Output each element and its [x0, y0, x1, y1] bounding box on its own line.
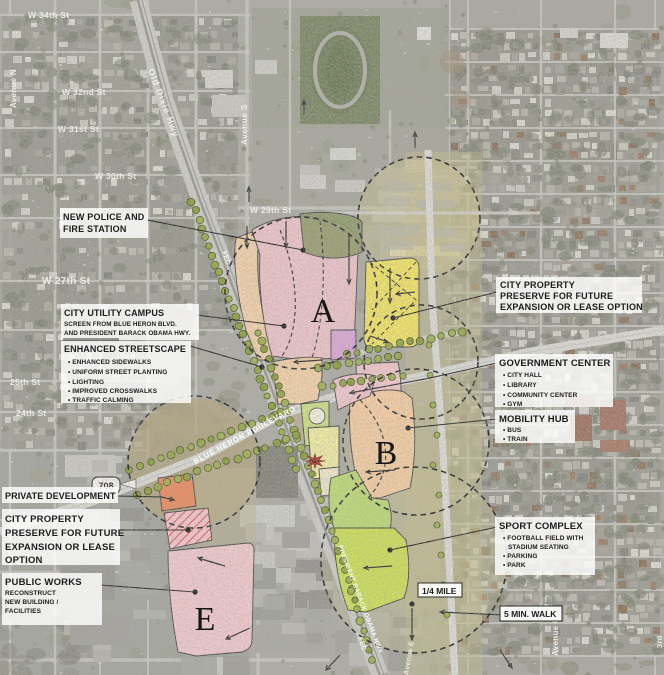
svg-text:GOVERNMENT CENTER: GOVERNMENT CENTER: [499, 358, 611, 369]
svg-text:FACILITIES: FACILITIES: [5, 608, 42, 615]
svg-text:Avenue N: Avenue N: [9, 69, 18, 108]
svg-text:1/4 MILE: 1/4 MILE: [422, 586, 457, 596]
svg-text:• IMPROVED CROSSWALKS: • IMPROVED CROSSWALKS: [68, 388, 158, 395]
svg-text:A: A: [311, 293, 336, 330]
svg-text:• PARK: • PARK: [503, 562, 526, 569]
svg-text:Avenue C: Avenue C: [551, 617, 560, 656]
svg-text:PRESERVE FOR FUTURE: PRESERVE FOR FUTURE: [500, 291, 613, 301]
svg-text:• COMMUNITY CENTER: • COMMUNITY CENTER: [503, 392, 578, 399]
svg-text:W 34th St: W 34th St: [28, 10, 69, 20]
svg-text:EXPANSION OR LEASE OPTION: EXPANSION OR LEASE OPTION: [500, 302, 643, 312]
svg-text:CITY UTILITY CAMPUS: CITY UTILITY CAMPUS: [64, 308, 164, 318]
svg-text:• GYM: • GYM: [503, 401, 522, 408]
svg-text:NEW BUILDING /: NEW BUILDING /: [5, 599, 58, 606]
svg-text:• TRAFFIC CALMING: • TRAFFIC CALMING: [68, 397, 134, 404]
svg-text:NEW POLICE AND: NEW POLICE AND: [63, 212, 145, 222]
svg-text:W 31st St: W 31st St: [58, 124, 99, 134]
svg-text:• PARKING: • PARKING: [503, 553, 537, 560]
svg-text:• ENHANCED SIDEWALKS: • ENHANCED SIDEWALKS: [68, 359, 152, 366]
svg-text:RECONSTRUCT: RECONSTRUCT: [5, 590, 56, 597]
svg-text:SCREEN FROM BLUE HERON BLVD.: SCREEN FROM BLUE HERON BLVD.: [64, 321, 177, 328]
svg-text:STADIUM SEATING: STADIUM SEATING: [508, 544, 569, 551]
svg-text:CITY PROPERTY: CITY PROPERTY: [5, 514, 84, 525]
svg-text:• BUS: • BUS: [503, 427, 522, 434]
svg-text:E: E: [195, 601, 216, 638]
svg-text:W 32nd St: W 32nd St: [62, 87, 106, 97]
svg-text:SPORT COMPLEX: SPORT COMPLEX: [499, 521, 583, 532]
svg-text:W 30th St: W 30th St: [95, 171, 136, 181]
svg-text:Avenue S: Avenue S: [239, 104, 249, 145]
svg-text:FIRE STATION: FIRE STATION: [63, 224, 127, 234]
svg-text:W 29th St: W 29th St: [250, 205, 291, 215]
svg-text:5 MIN. WALK: 5 MIN. WALK: [504, 609, 557, 619]
svg-text:B: B: [375, 435, 398, 472]
svg-text:W 27th St: W 27th St: [42, 276, 91, 287]
svg-text:• UNIFORM STREET PLANTING: • UNIFORM STREET PLANTING: [68, 369, 167, 376]
svg-text:• LIBRARY: • LIBRARY: [503, 382, 537, 389]
svg-text:• CITY HALL: • CITY HALL: [503, 372, 542, 379]
svg-text:MOBILITY HUB: MOBILITY HUB: [499, 414, 569, 425]
svg-text:PRESERVE FOR FUTURE: PRESERVE FOR FUTURE: [5, 528, 124, 539]
svg-text:• FOOTBALL FIELD WITH: • FOOTBALL FIELD WITH: [503, 535, 584, 542]
svg-text:PUBLIC WORKS: PUBLIC WORKS: [5, 577, 82, 588]
svg-text:PRIVATE DEVELOPMENT: PRIVATE DEVELOPMENT: [5, 491, 116, 501]
svg-text:EXPANSION OR LEASE: EXPANSION OR LEASE: [5, 542, 115, 553]
svg-text:AND PRESIDENT BARACK OBAMA HWY: AND PRESIDENT BARACK OBAMA HWY.: [64, 330, 191, 337]
svg-text:3rd: 3rd: [655, 635, 664, 648]
svg-text:• TRAIN: • TRAIN: [503, 436, 528, 443]
svg-text:24th St: 24th St: [16, 408, 46, 418]
svg-text:ENHANCED STREETSCAPE: ENHANCED STREETSCAPE: [64, 344, 186, 354]
svg-text:25th St: 25th St: [10, 377, 40, 387]
svg-text:• LIGHTING: • LIGHTING: [68, 379, 104, 386]
svg-text:OPTION: OPTION: [5, 555, 43, 566]
svg-text:CITY PROPERTY: CITY PROPERTY: [500, 280, 575, 290]
